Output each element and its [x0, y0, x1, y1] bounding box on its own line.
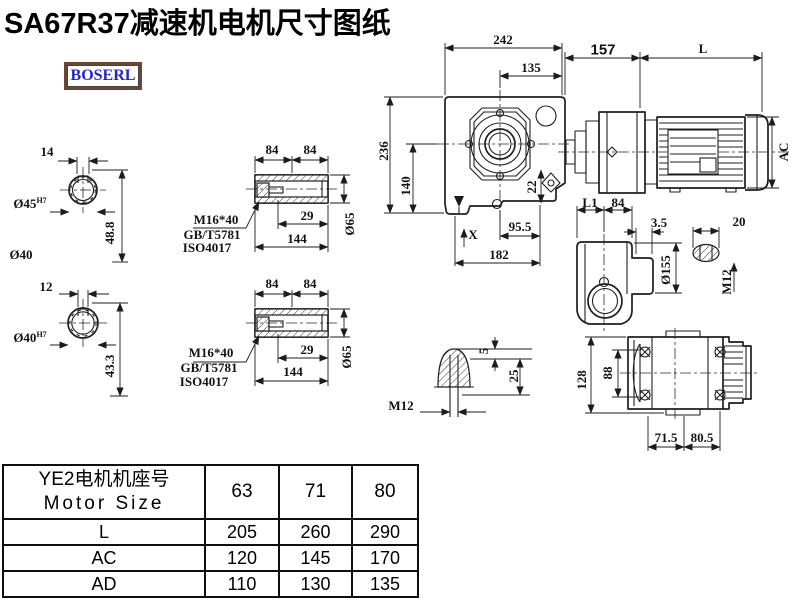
dim-bottom-height: 128 [574, 370, 590, 390]
table-row-ac: AC 120 145 170 [3, 545, 418, 571]
label-datum-x: X [468, 227, 477, 243]
dim-flange-dia: Ø155 [658, 255, 674, 285]
table-header-cell: YE2电机机座号 Motor Size [3, 465, 205, 519]
dim-foot: 22 [524, 181, 540, 194]
dim-motor-dia: AC [776, 143, 792, 162]
table-row-ad: AD 110 130 135 [3, 571, 418, 597]
table-header-row: YE2电机机座号 Motor Size 63 71 80 [3, 465, 418, 519]
label-plug-m12: M12 [388, 398, 413, 414]
label-std-iso-bottom: ISO4017 [180, 374, 228, 390]
table-header-cn: YE2电机机座号 [4, 468, 204, 492]
label-bolt-spec-bottom: M16*40 [189, 345, 234, 361]
dim-hollow-bot-depth: 29 [301, 342, 314, 358]
dim-depth-top: 48.8 [102, 222, 118, 245]
dim-bore-top: Ø45H7 [13, 196, 46, 212]
label-bolt-spec-top: M16*40 [194, 212, 239, 228]
dim-bore-top-value: Ø45 [13, 196, 36, 211]
dim-hollow-top-total: 144 [287, 231, 307, 247]
dim-bottom-inner-height: 88 [600, 367, 616, 380]
table-col-71: 71 [279, 465, 352, 519]
dim-side-3-5: 3.5 [651, 215, 667, 231]
dim-hollow-top-depth: 29 [301, 208, 314, 224]
motor-view-drawing [558, 52, 792, 193]
dim-overall-width: 242 [493, 32, 513, 48]
drawing-page: { "title": "SA67R37减速机电机尺寸图纸", "logo": "… [0, 0, 800, 609]
table-header-en: Motor Size [4, 492, 204, 516]
dim-bore-bottom: Ø40H7 [13, 330, 46, 346]
dim-plug-25: 25 [506, 370, 522, 383]
cell-ac-80: 170 [352, 545, 418, 571]
dim-key-width-bottom: 12 [40, 279, 53, 295]
dim-side-84: 84 [612, 195, 625, 211]
row-label-l: L [3, 519, 205, 545]
dim-base-width: 182 [489, 247, 509, 263]
dim-hollow-bot-dia: Ø65 [339, 345, 355, 368]
front-view-drawing [384, 43, 572, 266]
row-label-ac: AC [3, 545, 205, 571]
dim-gear-length: 157 [590, 42, 615, 59]
motor-size-table: YE2电机机座号 Motor Size 63 71 80 L 205 260 2… [2, 464, 419, 598]
cell-l-80: 290 [352, 519, 418, 545]
dim-key-width-top: 14 [41, 144, 54, 160]
dim-hollow-bot-len-a: 84 [266, 276, 279, 292]
dim-shaft-dia: Ø40 [9, 247, 32, 263]
cell-l-63: 205 [205, 519, 279, 545]
dim-bottom-span-right: 80.5 [691, 430, 714, 446]
shaft-section-bottom-drawing [50, 290, 128, 396]
dim-hollow-bot-total: 144 [283, 364, 303, 380]
dim-overall-height: 236 [376, 141, 392, 161]
label-side-m12: M12 [719, 269, 735, 294]
cell-ac-63: 120 [205, 545, 279, 571]
dim-flange-offset: 135 [521, 60, 541, 76]
dim-side-20: 20 [733, 214, 746, 230]
shaft-section-top-drawing [50, 157, 128, 262]
dim-hollow-top-len-a: 84 [266, 142, 279, 158]
table-row-l: L 205 260 290 [3, 519, 418, 545]
table-col-63: 63 [205, 465, 279, 519]
dim-bore-top-tolerance: H7 [36, 196, 46, 205]
dim-hollow-bot-len-b: 84 [304, 276, 317, 292]
cell-ad-63: 110 [205, 571, 279, 597]
dim-bottom-span-left: 71.5 [655, 430, 678, 446]
dim-depth-bottom: 43.3 [102, 355, 118, 378]
dim-motor-length: L [699, 41, 708, 57]
cell-ad-71: 130 [279, 571, 352, 597]
cell-l-71: 260 [279, 519, 352, 545]
dim-bore-bottom-value: Ø40 [13, 330, 36, 345]
dim-hollow-top-len-b: 84 [304, 142, 317, 158]
table-col-80: 80 [352, 465, 418, 519]
label-std-iso-top: ISO4017 [183, 240, 231, 256]
dim-center-height: 140 [398, 176, 414, 196]
dim-bore-bottom-tolerance: H7 [36, 330, 46, 339]
dim-plug-5: 5 [476, 348, 492, 355]
cell-ac-71: 145 [279, 545, 352, 571]
row-label-ad: AD [3, 571, 205, 597]
cell-ad-80: 135 [352, 571, 418, 597]
dim-hole-span: 95.5 [509, 219, 532, 235]
dim-side-l1: L1 [582, 195, 597, 211]
dim-hollow-top-dia: Ø65 [342, 212, 358, 235]
